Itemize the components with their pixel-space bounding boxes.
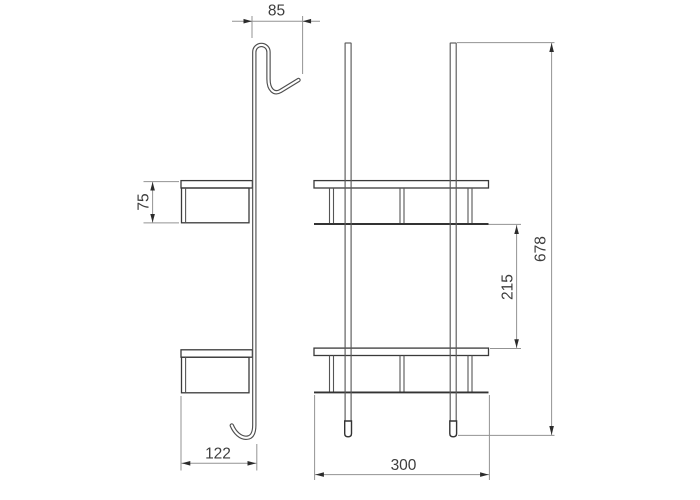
dim-label-overall-height: 678 xyxy=(533,236,550,262)
front-lower-shelf-rail xyxy=(314,348,489,355)
dim-arrow xyxy=(248,461,257,466)
dim-arrow xyxy=(150,214,155,223)
dim-arrow xyxy=(244,19,253,24)
dim-side-base-width: 122 xyxy=(181,396,257,471)
front-left-rail-hook-end xyxy=(345,421,352,437)
dim-arrow xyxy=(315,472,324,477)
dim-arrow xyxy=(549,426,554,435)
front-lower-shelf xyxy=(314,348,489,392)
dim-label-side-base-width: 122 xyxy=(205,446,231,463)
front-right-rail xyxy=(450,43,457,437)
dim-arrow xyxy=(303,19,312,24)
side-rail-and-hooks xyxy=(232,45,299,438)
front-right-rail-hook-end xyxy=(450,421,457,437)
dim-arrow xyxy=(150,182,155,191)
dim-hook-width: 85 xyxy=(232,3,320,75)
dim-arrow xyxy=(549,43,554,52)
dim-label-shelf-depth: 75 xyxy=(136,193,153,210)
dim-arrow xyxy=(514,226,519,235)
side-lower-shelf xyxy=(181,350,252,393)
front-view: 678 215 300 xyxy=(314,43,555,480)
side-rail-tube-outline xyxy=(232,45,299,438)
side-upper-shelf-rail xyxy=(181,181,252,188)
side-lower-shelf-body xyxy=(182,357,250,393)
side-upper-shelf-body xyxy=(182,188,250,223)
technical-drawing: 85 75 122 xyxy=(0,0,700,500)
front-upper-shelf-rail xyxy=(314,181,489,188)
dim-front-width: 300 xyxy=(315,395,490,480)
side-lower-shelf-rail xyxy=(181,350,252,357)
dim-arrow xyxy=(480,472,489,477)
dim-label-front-width: 300 xyxy=(391,457,417,474)
side-upper-shelf xyxy=(181,181,252,223)
front-left-rail xyxy=(345,43,352,437)
dim-arrow xyxy=(182,461,191,466)
side-rail-tube-core xyxy=(232,45,299,438)
dim-label-shelf-gap: 215 xyxy=(500,274,517,300)
dim-label-hook-width: 85 xyxy=(268,3,285,20)
dim-arrow xyxy=(514,339,519,348)
front-upper-shelf xyxy=(314,181,489,224)
dim-shelf-gap: 215 xyxy=(489,224,522,348)
dim-shelf-depth: 75 xyxy=(136,182,180,223)
side-view: 85 75 122 xyxy=(136,3,321,471)
drawing-canvas: 85 75 122 xyxy=(0,0,700,500)
